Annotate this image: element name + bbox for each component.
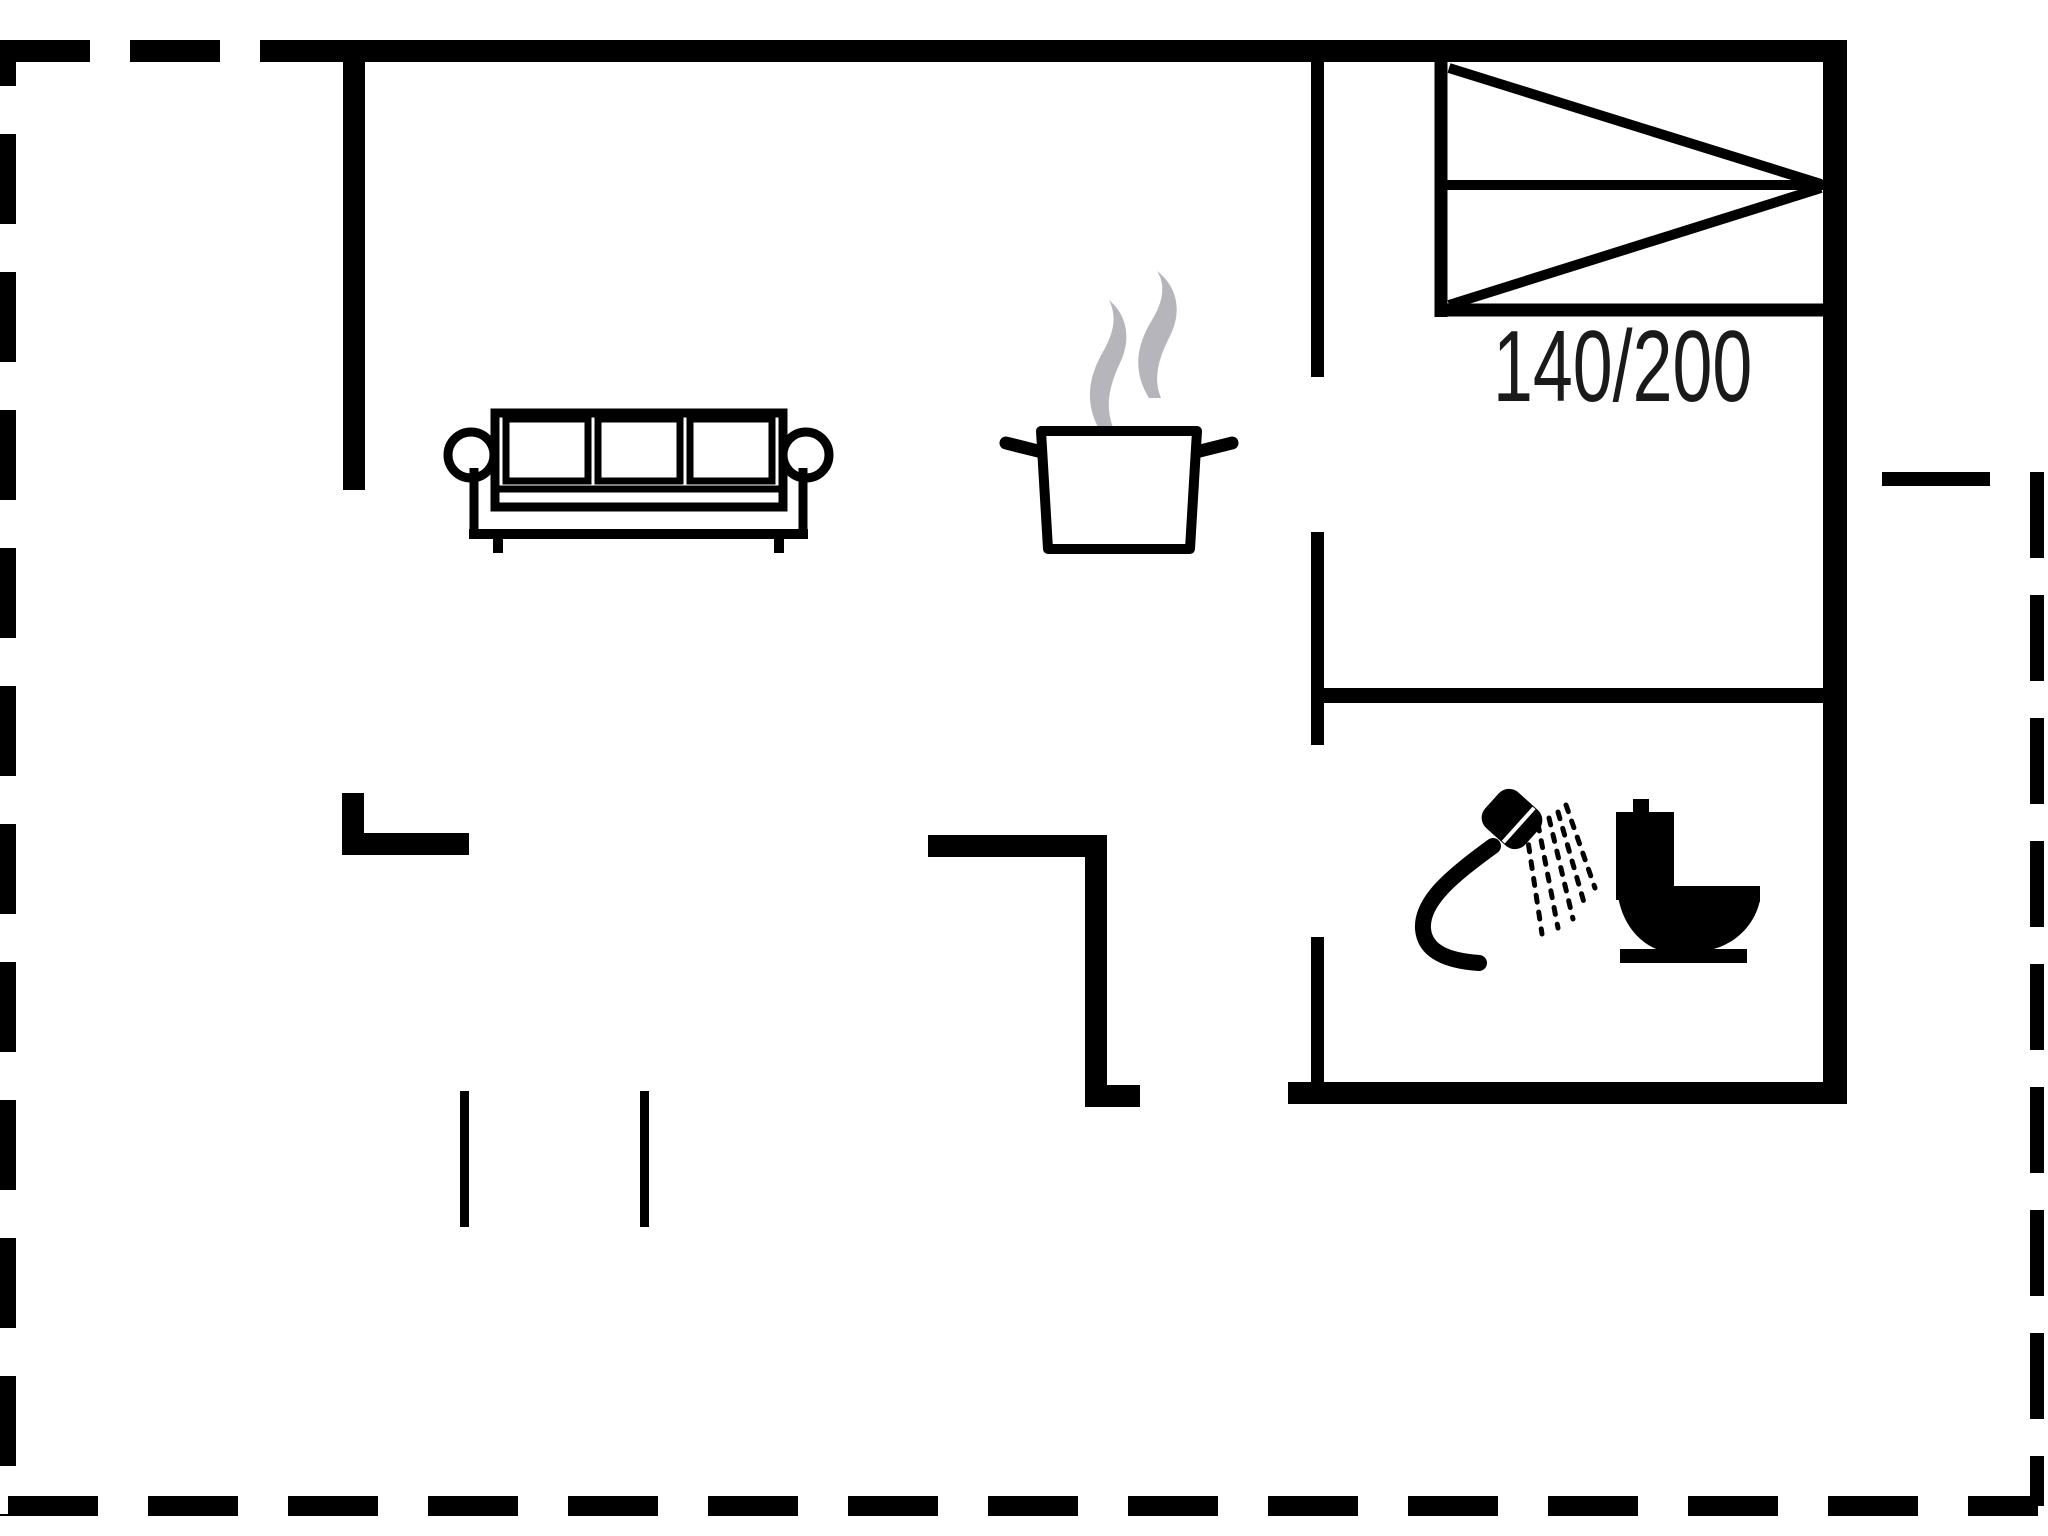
entry-wall-horizontal — [342, 833, 469, 855]
bed-size-label: 140/200 — [1493, 312, 1750, 422]
top-wall — [343, 40, 1847, 62]
shower-spray — [1526, 805, 1595, 934]
shower-hose — [1423, 846, 1493, 963]
bed-upper-diagonal — [1449, 68, 1821, 184]
toilet-base — [1620, 949, 1747, 963]
sofa-icon — [448, 413, 829, 553]
bathroom-bottom-wall — [1288, 1082, 1847, 1104]
floor-plan-canvas — [0, 0, 2048, 1536]
pot-handle-left — [1006, 443, 1042, 452]
pot-handle-right — [1196, 443, 1232, 452]
toilet-bowl — [1618, 896, 1760, 951]
steam-wisp-right — [1138, 271, 1176, 398]
steam-icon — [1090, 271, 1177, 427]
terrace-dashed-outline — [0, 40, 2038, 1516]
shower-icon — [1423, 783, 1595, 963]
door-opening-marker-right — [640, 1091, 649, 1227]
door-opening-marker-left — [460, 1091, 469, 1227]
spray-line-3 — [1549, 818, 1573, 919]
steam-wisp-left — [1090, 300, 1126, 427]
toilet-icon — [1616, 799, 1760, 963]
right-wall — [1823, 40, 1847, 1104]
bedroom-partition-middle — [1311, 532, 1324, 745]
hallway-wall-foot — [1085, 1085, 1140, 1107]
bed-lower-diagonal — [1449, 188, 1821, 305]
walls — [342, 40, 1847, 1227]
toilet-tank — [1616, 812, 1674, 900]
floor-plan-page: 140/200 — [0, 0, 2048, 1536]
double-bed-icon — [1435, 62, 1823, 317]
pot-body — [1041, 431, 1197, 549]
bathroom-partition-left — [1311, 937, 1324, 1104]
cooking-pot-icon — [1006, 431, 1232, 549]
hallway-wall-vertical — [1085, 835, 1107, 1107]
bedroom-partition-upper — [1311, 62, 1324, 377]
toilet-flush-knob — [1633, 799, 1649, 812]
left-wall-upper — [343, 40, 365, 490]
hallway-wall-horizontal — [928, 835, 1107, 857]
bedroom-bathroom-divider — [1311, 688, 1847, 703]
sofa-backrest — [495, 413, 783, 507]
